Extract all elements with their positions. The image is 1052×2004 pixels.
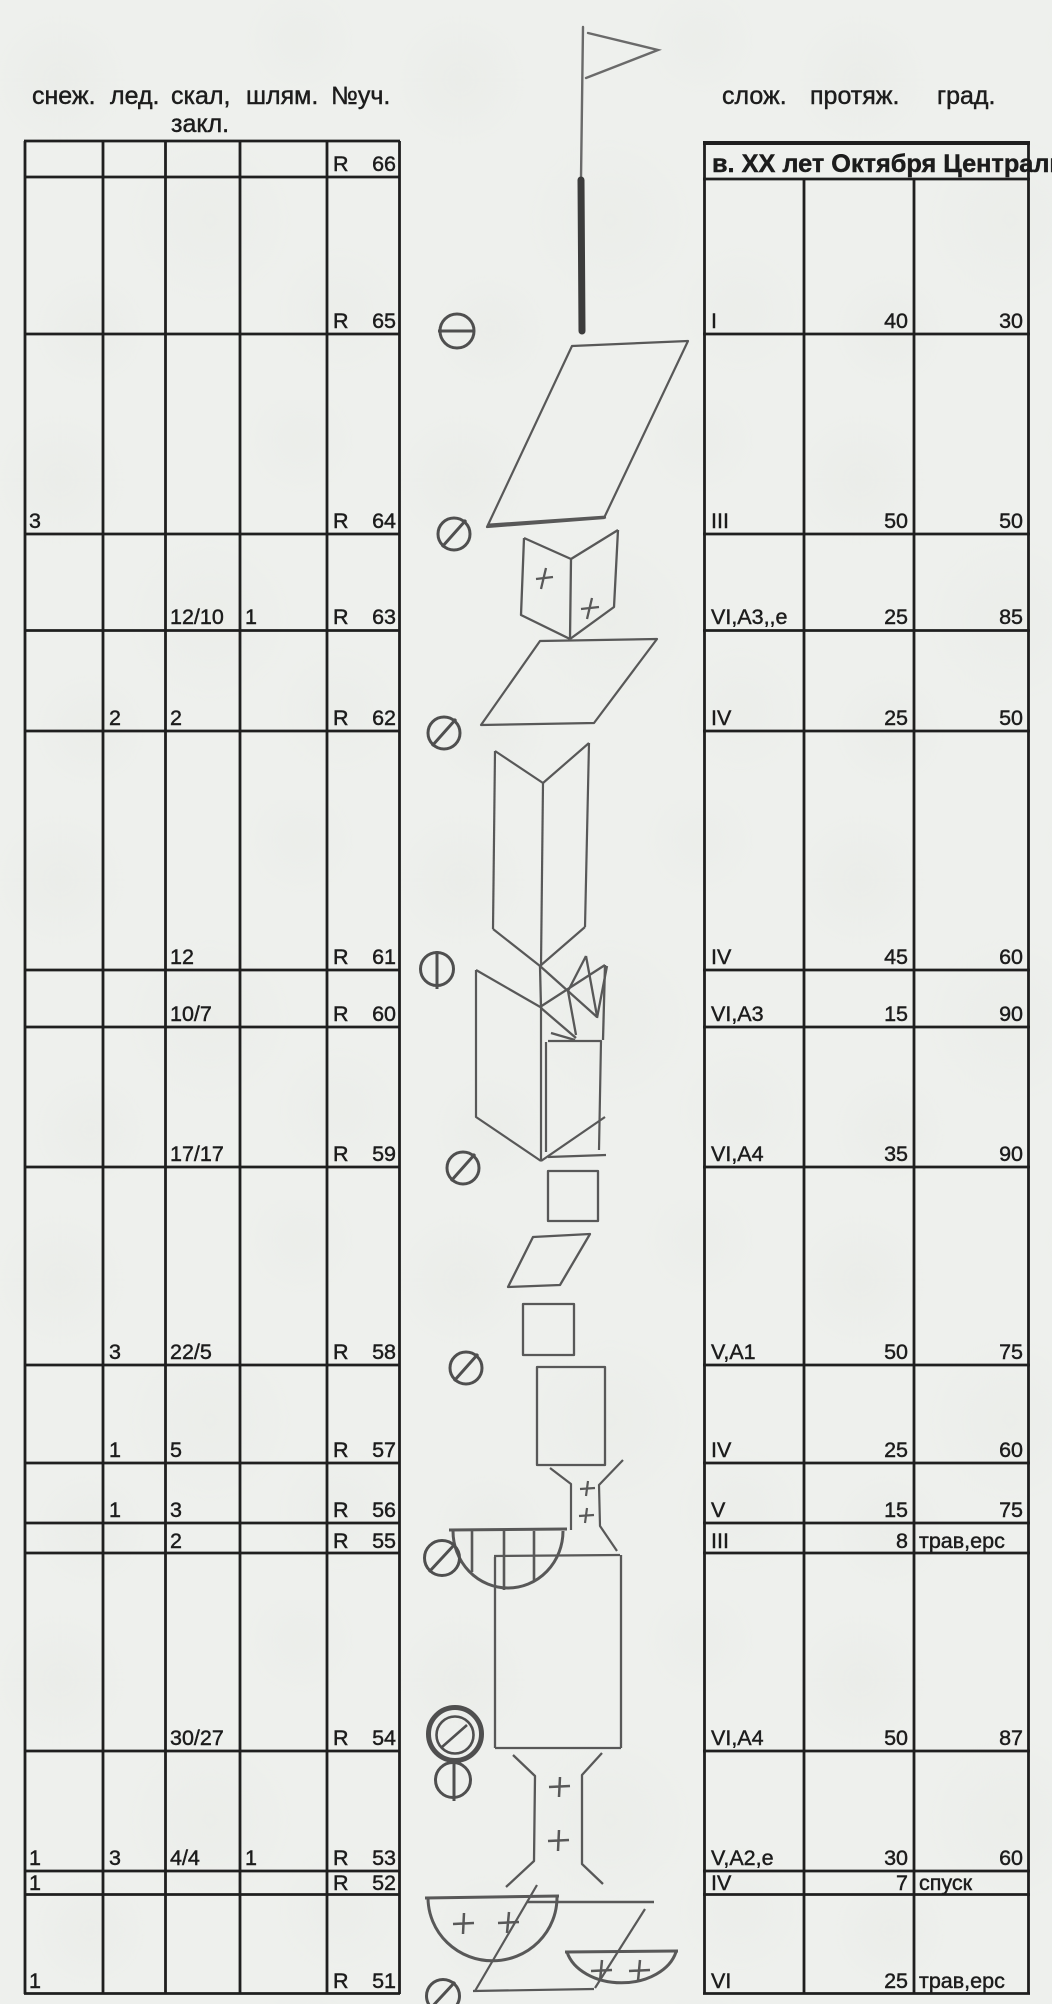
svg-text:60: 60 bbox=[999, 1846, 1023, 1870]
svg-text:12: 12 bbox=[170, 945, 194, 969]
svg-text:V,A1: V,A1 bbox=[711, 1340, 756, 1364]
svg-text:85: 85 bbox=[999, 605, 1023, 629]
svg-text:закл.: закл. bbox=[171, 110, 229, 138]
svg-text:шлям.: шлям. bbox=[246, 82, 318, 110]
svg-text:1: 1 bbox=[29, 1969, 41, 1993]
svg-text:3: 3 bbox=[109, 1846, 121, 1870]
svg-text:VI,A4: VI,A4 bbox=[711, 1142, 764, 1166]
svg-text:1: 1 bbox=[109, 1438, 121, 1462]
svg-text:слож.: слож. bbox=[722, 82, 787, 110]
svg-text:трав,ерс: трав,ерс bbox=[919, 1969, 1005, 1993]
svg-text:в. XX лет Октября Центральн: в. XX лет Октября Центральн bbox=[712, 150, 1052, 178]
svg-text:90: 90 bbox=[999, 1142, 1023, 1166]
svg-text:15: 15 bbox=[884, 1498, 908, 1522]
svg-text:22/5: 22/5 bbox=[170, 1340, 212, 1364]
svg-text:R: R bbox=[333, 605, 349, 629]
svg-text:1: 1 bbox=[29, 1846, 41, 1870]
svg-text:65: 65 bbox=[372, 309, 396, 333]
svg-text:50: 50 bbox=[999, 509, 1023, 533]
svg-text:54: 54 bbox=[372, 1726, 396, 1750]
svg-text:R: R bbox=[333, 1969, 349, 1993]
svg-text:50: 50 bbox=[884, 1340, 908, 1364]
svg-text:R: R bbox=[333, 706, 349, 730]
svg-text:15: 15 bbox=[884, 1002, 908, 1026]
svg-text:40: 40 bbox=[884, 309, 908, 333]
svg-text:61: 61 bbox=[372, 945, 396, 969]
svg-text:66: 66 bbox=[372, 152, 396, 176]
svg-text:7: 7 bbox=[896, 1871, 908, 1895]
svg-text:R: R bbox=[333, 945, 349, 969]
svg-text:трав,ерс: трав,ерс bbox=[919, 1529, 1005, 1553]
svg-text:25: 25 bbox=[884, 706, 908, 730]
svg-text:IV: IV bbox=[711, 706, 732, 730]
svg-text:I: I bbox=[711, 309, 717, 333]
svg-text:53: 53 bbox=[372, 1846, 396, 1870]
svg-text:3: 3 bbox=[170, 1498, 182, 1522]
svg-text:58: 58 bbox=[372, 1340, 396, 1364]
svg-text:3: 3 bbox=[109, 1340, 121, 1364]
svg-text:17/17: 17/17 bbox=[170, 1142, 224, 1166]
svg-text:25: 25 bbox=[884, 605, 908, 629]
svg-text:3: 3 bbox=[29, 509, 41, 533]
svg-text:75: 75 bbox=[999, 1498, 1023, 1522]
svg-text:спуск: спуск bbox=[919, 1871, 973, 1895]
svg-text:R: R bbox=[333, 1002, 349, 1026]
svg-text:снеж.: снеж. bbox=[32, 82, 96, 110]
svg-text:R: R bbox=[333, 509, 349, 533]
svg-text:8: 8 bbox=[896, 1529, 908, 1553]
svg-text:IV: IV bbox=[711, 1871, 732, 1895]
svg-text:12/10: 12/10 bbox=[170, 605, 224, 629]
svg-text:4/4: 4/4 bbox=[170, 1846, 200, 1870]
svg-text:R: R bbox=[333, 1871, 349, 1895]
svg-text:10/7: 10/7 bbox=[170, 1002, 212, 1026]
svg-text:25: 25 bbox=[884, 1969, 908, 1993]
svg-text:2: 2 bbox=[109, 706, 121, 730]
svg-text:30: 30 bbox=[884, 1846, 908, 1870]
svg-text:протяж.: протяж. bbox=[810, 82, 899, 110]
svg-text:R: R bbox=[333, 1529, 349, 1553]
svg-text:35: 35 bbox=[884, 1142, 908, 1166]
svg-text:59: 59 bbox=[372, 1142, 396, 1166]
svg-text:VI,A3,,e: VI,A3,,e bbox=[711, 605, 788, 629]
svg-text:1: 1 bbox=[245, 605, 257, 629]
svg-text:R: R bbox=[333, 309, 349, 333]
svg-text:57: 57 bbox=[372, 1438, 396, 1462]
svg-text:III: III bbox=[711, 509, 729, 533]
svg-text:52: 52 bbox=[372, 1871, 396, 1895]
svg-text:1: 1 bbox=[245, 1846, 257, 1870]
svg-text:VI: VI bbox=[711, 1969, 731, 1993]
svg-text:R: R bbox=[333, 1498, 349, 1522]
svg-text:VI,A4: VI,A4 bbox=[711, 1726, 764, 1750]
svg-text:50: 50 bbox=[884, 1726, 908, 1750]
svg-text:R: R bbox=[333, 1846, 349, 1870]
svg-text:№уч.: №уч. bbox=[331, 82, 390, 110]
svg-text:75: 75 bbox=[999, 1340, 1023, 1364]
svg-text:30: 30 bbox=[999, 309, 1023, 333]
svg-text:64: 64 bbox=[372, 509, 396, 533]
svg-text:60: 60 bbox=[999, 1438, 1023, 1462]
svg-text:V: V bbox=[711, 1498, 726, 1522]
svg-text:51: 51 bbox=[372, 1969, 396, 1993]
svg-text:R: R bbox=[333, 1726, 349, 1750]
svg-text:VI,A3: VI,A3 bbox=[711, 1002, 764, 1026]
svg-text:IV: IV bbox=[711, 945, 732, 969]
svg-text:R: R bbox=[333, 1142, 349, 1166]
svg-text:60: 60 bbox=[999, 945, 1023, 969]
svg-text:60: 60 bbox=[372, 1002, 396, 1026]
svg-text:R: R bbox=[333, 1438, 349, 1462]
svg-text:45: 45 bbox=[884, 945, 908, 969]
svg-text:2: 2 bbox=[170, 1529, 182, 1553]
svg-text:1: 1 bbox=[29, 1871, 41, 1895]
svg-text:63: 63 bbox=[372, 605, 396, 629]
svg-text:56: 56 bbox=[372, 1498, 396, 1522]
svg-text:30/27: 30/27 bbox=[170, 1726, 224, 1750]
svg-text:1: 1 bbox=[109, 1498, 121, 1522]
svg-text:25: 25 bbox=[884, 1438, 908, 1462]
svg-text:лед.: лед. bbox=[110, 82, 159, 110]
svg-text:скал,: скал, bbox=[171, 82, 230, 110]
svg-text:V,A2,e: V,A2,e bbox=[711, 1846, 774, 1870]
svg-text:62: 62 bbox=[372, 706, 396, 730]
svg-text:град.: град. bbox=[937, 82, 995, 110]
svg-text:50: 50 bbox=[884, 509, 908, 533]
svg-text:55: 55 bbox=[372, 1529, 396, 1553]
svg-text:5: 5 bbox=[170, 1438, 182, 1462]
svg-text:2: 2 bbox=[170, 706, 182, 730]
svg-text:III: III bbox=[711, 1529, 729, 1553]
svg-text:90: 90 bbox=[999, 1002, 1023, 1026]
svg-text:50: 50 bbox=[999, 706, 1023, 730]
svg-text:IV: IV bbox=[711, 1438, 732, 1462]
svg-text:R: R bbox=[333, 152, 349, 176]
svg-text:R: R bbox=[333, 1340, 349, 1364]
svg-text:87: 87 bbox=[999, 1726, 1023, 1750]
